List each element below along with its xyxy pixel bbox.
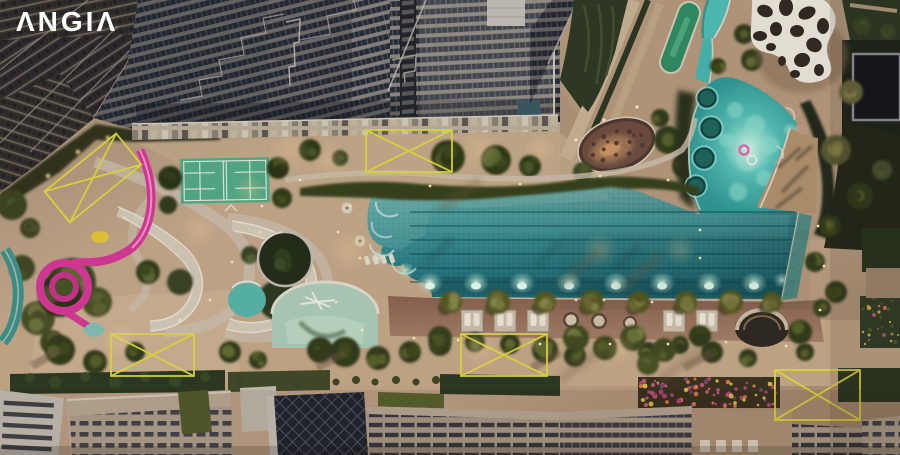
svg-text:ΛNGIΛ: ΛNGIΛ xyxy=(16,6,118,37)
